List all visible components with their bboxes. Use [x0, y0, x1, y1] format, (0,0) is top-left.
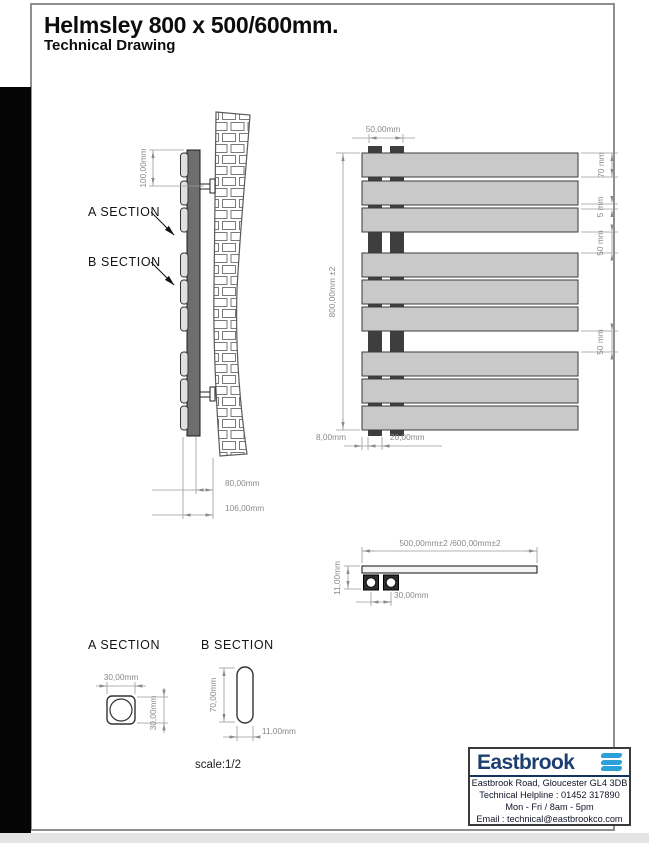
- footer-hours: Mon - Fri / 8am - 5pm: [470, 802, 629, 814]
- dim-section-gap-1: 50 mm: [595, 230, 605, 255]
- eastbrook-wave-icon: [601, 752, 622, 772]
- dim-section-a-height: 30,00mm: [148, 696, 158, 731]
- dim-pipe-offset: 8,00mm: [316, 432, 346, 442]
- dim-bracket-height: 100,00mm: [138, 148, 148, 187]
- a-section-pointer-label: A SECTION: [88, 205, 160, 219]
- dim-depth-bar: 80,00mm: [225, 478, 260, 488]
- technical-drawing-svg: 100,00mm A SECTION B SECTION 80,00mm 106…: [0, 0, 649, 843]
- footer-helpline: Technical Helpline : 01452 317890: [470, 790, 629, 802]
- plan-view: 500,00mm±2 /600,00mm±2 11,00mm 30,00mm: [332, 538, 537, 606]
- footer-email: Email : technical@eastbrookco.com: [470, 814, 629, 826]
- section-a-detail: A SECTION 30,00mm 30,00mm: [88, 638, 168, 733]
- eastbrook-logo-text: Eastbrook: [477, 752, 574, 773]
- dim-panel-height: 70 mm: [596, 152, 606, 177]
- eastbrook-info-box: Eastbrook Eastbrook Road, Gloucester GL4…: [468, 747, 631, 826]
- plan-tube-right: [384, 575, 399, 590]
- footer-address: Eastbrook Road, Gloucester GL4 3DB: [470, 778, 629, 790]
- a-section-leader: [151, 212, 174, 235]
- technical-drawing-page: Helmsley 800 x 500/600mm. Technical Draw…: [0, 0, 649, 843]
- dim-pipe-centres: 20,00mm: [390, 432, 425, 442]
- dim-section-a-width: 30,00mm: [104, 672, 139, 682]
- scale-label: scale:1/2: [195, 759, 241, 771]
- side-panel-edges: [181, 153, 189, 430]
- dim-tap-centres: 50,00mm: [366, 124, 401, 134]
- eastbrook-contact-lines: Eastbrook Road, Gloucester GL4 3DB Techn…: [470, 777, 629, 826]
- side-view: 100,00mm A SECTION B SECTION 80,00mm 106…: [88, 112, 264, 519]
- dim-panel-gap: 5 mm: [595, 197, 605, 218]
- front-view: 50,00mm 800,00mm ±2: [316, 124, 618, 450]
- section-b-title: B SECTION: [201, 638, 274, 652]
- dim-depth-total: 106,00mm: [225, 503, 264, 513]
- dim-section-b-width: 11,00mm: [262, 726, 296, 736]
- dim-plan-pipe-centres: 30,00mm: [394, 590, 429, 600]
- section-b-detail: B SECTION 70,00mm 11,00mm: [201, 638, 296, 741]
- section-a-bore-circle: [110, 699, 132, 721]
- dim-plan-depth: 11,00mm: [332, 561, 342, 595]
- side-upright-bar: [187, 150, 200, 436]
- wall-section: [214, 112, 250, 456]
- side-dim-depths: [152, 437, 213, 519]
- front-panels: [362, 153, 578, 430]
- b-section-pointer-label: B SECTION: [88, 255, 161, 269]
- eastbrook-logo-row: Eastbrook: [470, 749, 629, 777]
- plan-panel-bar: [362, 566, 537, 573]
- plan-tube-left: [364, 575, 379, 590]
- wall-bracket-bottom: [200, 387, 215, 401]
- b-section-leader: [151, 262, 174, 285]
- front-dim-height: [336, 153, 360, 430]
- front-dim-tap: [352, 134, 415, 143]
- dim-section-b-height: 70,00mm: [208, 678, 218, 713]
- dim-overall-height: 800,00mm ±2: [327, 266, 337, 317]
- section-b-oval-tube: [237, 667, 253, 723]
- dim-plan-width: 500,00mm±2 /600,00mm±2: [399, 538, 501, 548]
- dim-section-gap-2: 50 mm: [595, 329, 605, 354]
- section-a-title: A SECTION: [88, 638, 160, 652]
- bottom-gray-strip: [0, 833, 649, 843]
